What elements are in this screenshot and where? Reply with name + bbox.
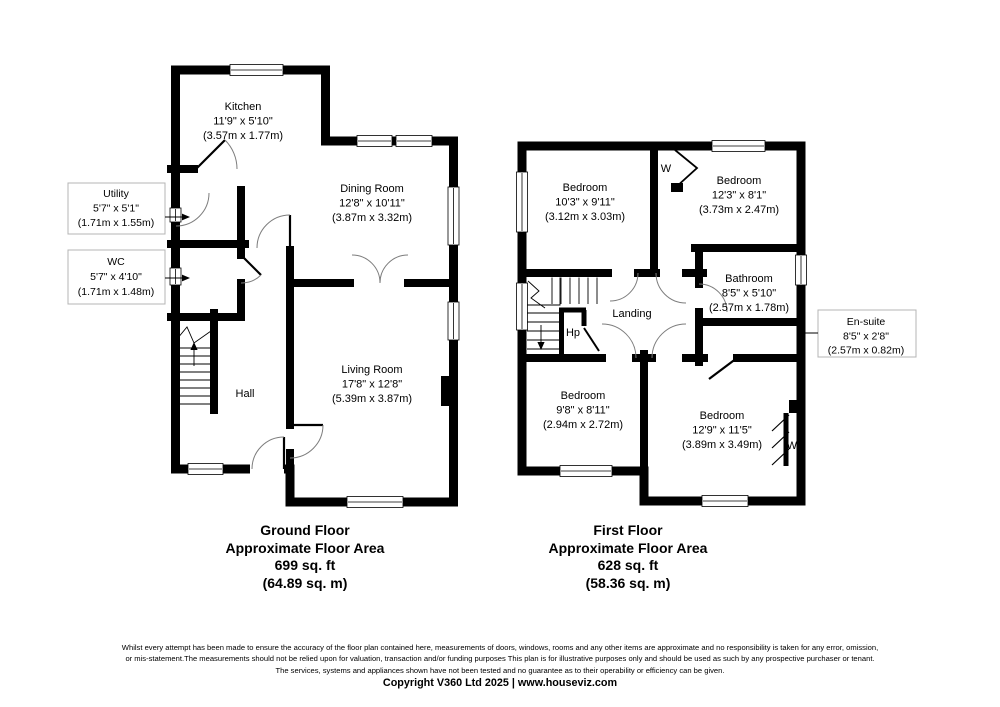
room-dims-imperial: 17'8" x 12'8" (342, 379, 402, 391)
room-dims-imperial: 11'9" x 5'10" (213, 116, 273, 128)
room-label-bedroom1: Bedroom (563, 182, 608, 194)
room-dims-metric: (3.87m x 3.32m) (332, 212, 412, 224)
room-dims-metric: (3.73m x 2.47m) (699, 204, 779, 216)
ground-floor-summary: Ground Floor Approximate Floor Area 699 … (155, 522, 455, 592)
disclaimer-line: Whilst every attempt has been made to en… (0, 642, 1000, 653)
floor-area-imperial: 628 sq. ft (478, 557, 778, 575)
room-label-bedroom2: Bedroom (717, 175, 762, 187)
floor-plan-canvas: Kitchen 11'9" x 5'10" (3.57m x 1.77m) Di… (0, 0, 1000, 707)
first-floor-plan: Bedroom 10'3" x 9'11" (3.12m x 3.03m) W … (517, 141, 917, 507)
room-dims-metric: (2.57m x 1.78m) (709, 302, 789, 314)
chimney-breast (789, 400, 806, 413)
room-dims-metric: (3.12m x 3.03m) (545, 211, 625, 223)
room-dims-imperial: 12'8" x 10'11" (339, 198, 405, 210)
room-label-living: Living Room (341, 364, 402, 376)
room-dims-imperial: 10'3" x 9'11" (555, 197, 615, 209)
room-dims-metric: (5.39m x 3.87m) (332, 393, 412, 405)
room-dims-imperial: 5'7" x 4'10" (90, 271, 142, 283)
room-label-hp: Hp (566, 327, 580, 339)
disclaimer-line: or mis-statement.The measurements should… (0, 653, 1000, 664)
room-label-bathroom: Bathroom (725, 273, 773, 285)
disclaimer-text: Whilst every attempt has been made to en… (0, 642, 1000, 676)
room-dims-imperial: 8'5" x 2'8" (843, 331, 889, 343)
floor-subtitle: Approximate Floor Area (155, 540, 455, 558)
room-label-bedroom4: Bedroom (700, 410, 745, 422)
floor-title: Ground Floor (155, 522, 455, 540)
room-dims-imperial: 5'7" x 5'1" (93, 203, 139, 215)
room-label-wc: WC (107, 256, 125, 268)
disclaimer-line: The services, systems and appliances sho… (0, 665, 1000, 676)
room-label-bedroom3: Bedroom (561, 390, 606, 402)
room-dims-imperial: 12'3" x 8'1" (712, 190, 766, 202)
room-label-hall: Hall (236, 388, 255, 400)
chimney-breast (441, 376, 458, 406)
room-dims-metric: (3.57m x 1.77m) (203, 130, 283, 142)
first-floor-summary: First Floor Approximate Floor Area 628 s… (478, 522, 778, 592)
room-dims-metric: (1.71m x 1.55m) (78, 217, 154, 229)
ground-floor-plan: Kitchen 11'9" x 5'10" (3.57m x 1.77m) Di… (68, 65, 459, 508)
room-dims-imperial: 9'8" x 8'11" (556, 405, 609, 417)
closet-wall-stub (671, 183, 683, 192)
floor-subtitle: Approximate Floor Area (478, 540, 778, 558)
floor-area-metric: (64.89 sq. m) (155, 575, 455, 593)
floor-title: First Floor (478, 522, 778, 540)
room-label-dining: Dining Room (340, 183, 404, 195)
room-dims-imperial: 8'5" x 5'10" (722, 288, 776, 300)
wardrobe-label: W (787, 440, 798, 452)
room-dims-metric: (2.57m x 0.82m) (828, 345, 904, 357)
room-dims-metric: (3.89m x 3.49m) (682, 439, 762, 451)
door-opening (250, 463, 284, 475)
room-label-landing: Landing (612, 308, 651, 320)
room-label-utility: Utility (103, 188, 129, 200)
floor-area-metric: (58.36 sq. m) (478, 575, 778, 593)
copyright-text: Copyright V360 Ltd 2025 | www.houseviz.c… (0, 677, 1000, 689)
room-dims-metric: (1.71m x 1.48m) (78, 286, 154, 298)
room-label-kitchen: Kitchen (225, 101, 262, 113)
floor-plan-document: Kitchen 11'9" x 5'10" (3.57m x 1.77m) Di… (0, 0, 1000, 707)
floor-area-imperial: 699 sq. ft (155, 557, 455, 575)
wardrobe-label: W (661, 163, 672, 175)
room-label-ensuite: En-suite (847, 316, 886, 328)
room-dims-imperial: 12'9" x 11'5" (692, 425, 752, 437)
room-dims-metric: (2.94m x 2.72m) (543, 419, 623, 431)
